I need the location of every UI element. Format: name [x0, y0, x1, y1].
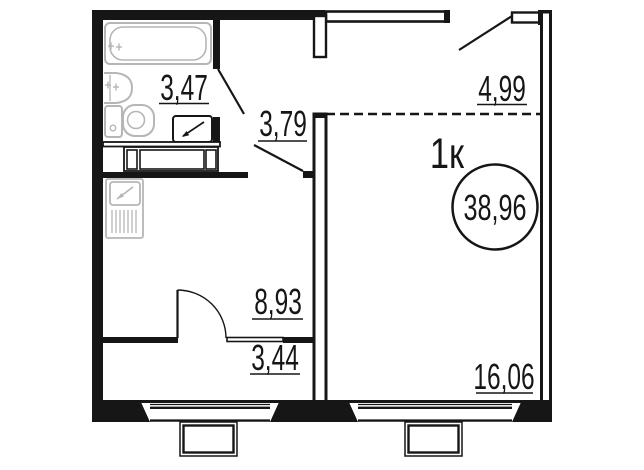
middle-wall: [314, 114, 326, 402]
bathroom-wall-upper: [213, 18, 220, 69]
kitchen-fixtures: [106, 179, 143, 238]
bathroom-bottom-partition: [103, 142, 220, 147]
hallway-door-leaf: [254, 145, 303, 171]
sink-faucet-icon: [105, 82, 119, 91]
window-left: [150, 405, 270, 421]
living-room-area-label: 16,06: [473, 356, 534, 397]
hallway-area-label: 3,79: [259, 103, 307, 144]
hall-entry-stub-wall: [314, 16, 326, 57]
bottom-pier-right: [512, 400, 552, 422]
hallway-kitchen-wall: [92, 172, 248, 178]
hallway-door-jamb: [303, 171, 313, 178]
floor-plan: 3,47 3,79 4,99 8,93 3,44 16,06 1к 38,96: [0, 0, 644, 470]
unit-type-label: 1к: [430, 130, 465, 177]
bottom-pier-left: [92, 400, 150, 422]
kitchen-area-label: 8,93: [254, 281, 302, 322]
bathroom-area-label: 3,47: [160, 67, 208, 108]
top-wall-end-cap: [444, 10, 450, 23]
floor-plan-drawing: 3,47 3,79 4,99 8,93 3,44 16,06 1к 38,96: [0, 0, 644, 470]
bottom-pier-middle: [270, 400, 358, 422]
total-area-value: 38,96: [463, 188, 526, 229]
storage-door-swing-arc: [178, 290, 227, 338]
bathroom-wall-lower: [213, 117, 220, 144]
window-sill-box-right: [405, 422, 462, 456]
storage-area-label: 3,44: [251, 337, 299, 378]
right-wall: [542, 12, 551, 402]
wardrobe-icon: [124, 147, 218, 171]
bathtub-inner: [110, 27, 206, 60]
entry-zone-area-label: 4,99: [478, 68, 526, 109]
total-area-badge: 38,96: [453, 165, 538, 250]
toilet-icon: [105, 105, 154, 137]
top-wall-left: [92, 10, 325, 20]
middle-wall-top-cap: [313, 113, 328, 118]
entry-door-leaf-rect: [512, 13, 540, 23]
washing-machine-icon: [173, 116, 212, 142]
kitchen-drainer-hatch: [112, 210, 136, 233]
window-sill-box-left: [180, 422, 237, 456]
window-right: [358, 405, 512, 421]
bathroom-door-leaf: [218, 69, 244, 114]
top-wall-middle: [326, 12, 448, 22]
kitchen-storage-wall-left: [97, 337, 178, 343]
entry-door-leaf: [459, 16, 512, 50]
left-wall: [92, 10, 103, 402]
bathtub-icon: [105, 23, 211, 64]
